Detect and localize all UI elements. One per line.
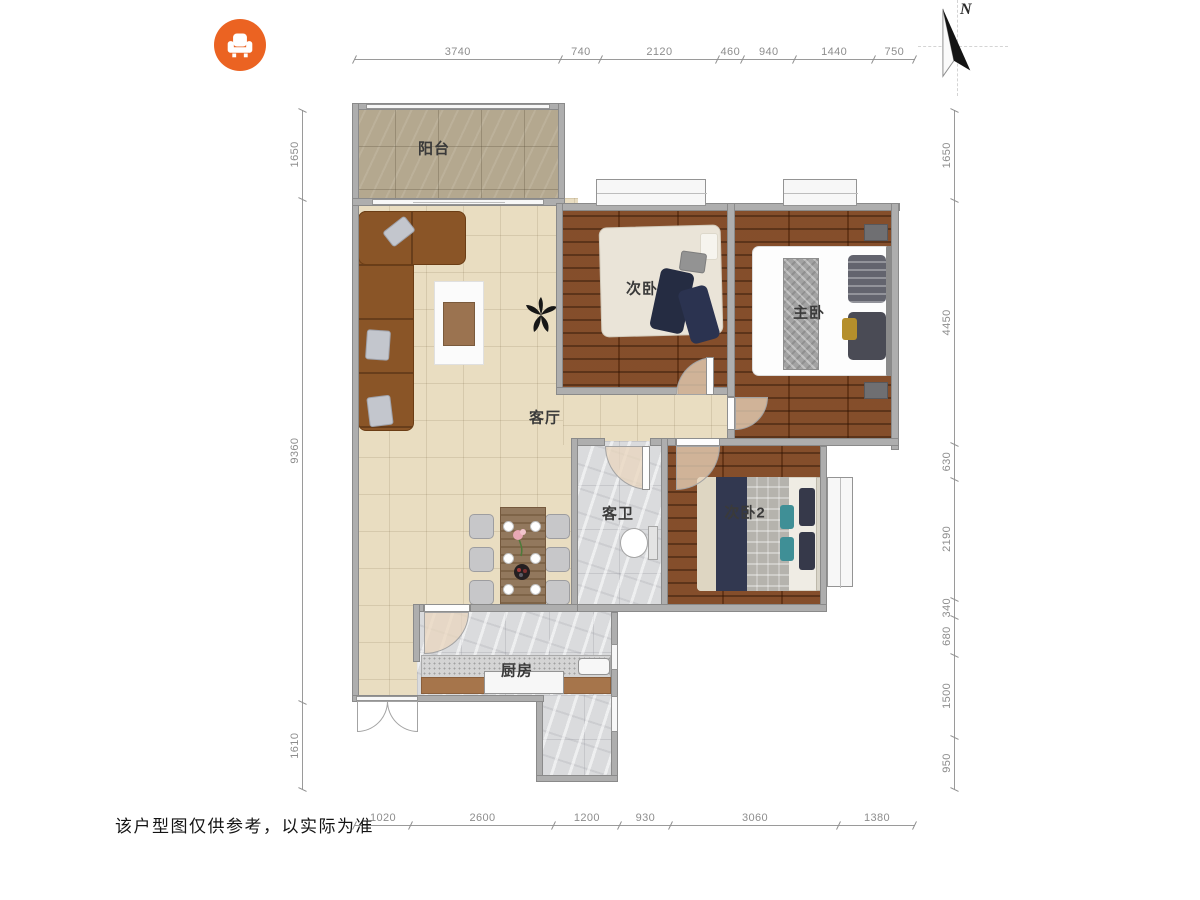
- dimension-segment: 1440: [795, 46, 874, 63]
- bedroom3-bay-window: [827, 477, 853, 587]
- dimension-value: 340: [941, 599, 953, 618]
- floorplan-canvas: 阳台 客厅 次卧 主卧 客卫 次卧2 厨房: [0, 0, 1200, 900]
- wall: [719, 438, 899, 446]
- hallway-floor: [563, 388, 729, 445]
- wall: [556, 387, 678, 395]
- plate: [530, 584, 541, 595]
- dining-chair: [545, 547, 570, 572]
- plate: [503, 584, 514, 595]
- bed-blanket: [716, 477, 748, 591]
- sofa-pillow: [365, 329, 391, 361]
- balcony-window: [366, 104, 550, 109]
- hotpot-icon: [513, 563, 531, 581]
- bed-pillow-dark: [799, 488, 815, 526]
- nightstand: [864, 224, 888, 241]
- label-bathroom: 客卫: [602, 503, 634, 524]
- dimension-segment: 1500: [941, 655, 958, 737]
- dining-chair: [545, 514, 570, 539]
- plant-icon: [524, 296, 558, 334]
- bedroom2-door-leaf: [706, 357, 714, 395]
- bed-pillow: [848, 255, 886, 303]
- wall: [556, 203, 563, 394]
- label-living-room: 客厅: [529, 407, 561, 428]
- sofa-pillow: [366, 395, 393, 428]
- dimension-value: 740: [561, 46, 602, 58]
- toilet-icon: [620, 528, 648, 558]
- balcony-floor: [352, 103, 565, 205]
- bathroom-door-leaf: [642, 446, 650, 490]
- corridor-window: [611, 696, 618, 732]
- dining-chair: [469, 547, 494, 572]
- toilet-tank: [648, 526, 658, 560]
- disclaimer-text: 该户型图仅供参考，以实际为准: [115, 812, 374, 837]
- dimension-row-bottom: 10202600120093030601380: [355, 812, 915, 829]
- wall: [536, 775, 618, 782]
- bedroom3-door-leaf: [676, 438, 720, 446]
- dimension-value: 2190: [941, 479, 953, 599]
- bed-pillow-dark: [799, 532, 815, 570]
- bed-clothes: [679, 250, 708, 273]
- dimension-segment: 1650: [941, 110, 958, 200]
- bed-pillow-teal: [780, 505, 794, 529]
- dimension-value: 1380: [839, 812, 915, 824]
- dimension-value: 2600: [411, 812, 554, 824]
- bed-sheet: [697, 477, 717, 591]
- bedroom2-window: [596, 179, 706, 206]
- dimension-row-right: 9501500680340219063044501650: [941, 110, 958, 789]
- dimension-segment: 4450: [941, 200, 958, 444]
- dimension-value: 2120: [601, 46, 718, 58]
- wall: [891, 203, 899, 450]
- dining-chair: [469, 580, 494, 605]
- wall: [661, 438, 668, 612]
- dimension-value: 680: [941, 618, 953, 655]
- dimension-segment: 1610: [289, 702, 306, 789]
- dimension-value: 3740: [355, 46, 561, 58]
- label-master-bedroom: 主卧: [793, 302, 825, 323]
- dimension-segment: 1200: [554, 812, 620, 829]
- dimension-value: 1200: [554, 812, 620, 824]
- corridor-floor: [540, 695, 618, 779]
- kitchen-sink: [578, 658, 610, 675]
- bed-quilt: [747, 477, 789, 591]
- dimension-row-top: 374074021204609401440750: [355, 46, 915, 63]
- dimension-segment: 2600: [411, 812, 554, 829]
- dimension-value: 9360: [289, 199, 301, 703]
- wall: [558, 103, 565, 206]
- dimension-segment: 740: [561, 46, 602, 63]
- dimension-segment: 750: [874, 46, 915, 63]
- dimension-segment: 9360: [289, 199, 306, 703]
- dimension-value: 940: [743, 46, 795, 58]
- dimension-segment: 930: [620, 812, 671, 829]
- dimension-segment: 460: [718, 46, 743, 63]
- dimension-value: 630: [941, 444, 953, 479]
- wall: [820, 446, 827, 612]
- nightstand: [864, 382, 888, 399]
- label-balcony: 阳台: [418, 138, 450, 159]
- flower-icon: [511, 527, 529, 557]
- entry-door-arc-right: [387, 701, 418, 732]
- plate: [530, 553, 541, 564]
- wall: [470, 604, 578, 612]
- dimension-segment: 950: [941, 737, 958, 789]
- dimension-segment: 2190: [941, 479, 958, 599]
- dimension-segment: 1380: [839, 812, 915, 829]
- master-window: [783, 179, 857, 206]
- dining-chair: [469, 514, 494, 539]
- dimension-value: 1440: [795, 46, 874, 58]
- dimension-value: 1650: [941, 110, 953, 200]
- dimension-segment: 630: [941, 444, 958, 479]
- dimension-segment: 3060: [671, 812, 839, 829]
- entry-door-arc-left: [357, 701, 388, 732]
- sofa-chaise: [358, 211, 466, 265]
- dimension-value: 1650: [289, 110, 301, 199]
- kitchen-door-leaf: [424, 604, 470, 612]
- wall: [727, 203, 735, 397]
- floorplan-page: { "logo": { "icon": "sofa-icon", "color"…: [0, 0, 1200, 900]
- dimension-value: 750: [874, 46, 915, 58]
- dimension-segment: 340: [941, 599, 958, 618]
- dimension-value: 3060: [671, 812, 839, 824]
- plate: [530, 521, 541, 532]
- wall: [413, 604, 420, 662]
- wall: [571, 438, 578, 612]
- label-kitchen: 厨房: [501, 660, 533, 681]
- dimension-value: 1610: [289, 702, 301, 789]
- wall: [536, 698, 543, 782]
- dining-chair: [545, 580, 570, 605]
- kitchen-window: [611, 644, 618, 670]
- dimension-segment: 940: [743, 46, 795, 63]
- bed-pillow-teal: [780, 537, 794, 561]
- master-door-leaf: [727, 397, 735, 430]
- dimension-segment: 2120: [601, 46, 718, 63]
- wall: [571, 604, 827, 612]
- dimension-segment: 680: [941, 618, 958, 655]
- dimension-segment: 3740: [355, 46, 561, 63]
- wall: [352, 103, 359, 702]
- dimension-segment: 1650: [289, 110, 306, 199]
- dimension-value: 1500: [941, 655, 953, 737]
- label-bedroom2: 次卧: [626, 278, 658, 299]
- dimension-value: 4450: [941, 200, 953, 444]
- dimension-row-left: 161093601650: [289, 110, 306, 789]
- dimension-value: 460: [718, 46, 743, 58]
- coffee-table: [443, 302, 475, 346]
- dimension-value: 930: [620, 812, 671, 824]
- dimension-value: 950: [941, 737, 953, 789]
- label-bedroom3: 次卧2: [724, 502, 765, 523]
- bed-cushion: [842, 318, 857, 340]
- balcony-sliding-door: [372, 199, 544, 205]
